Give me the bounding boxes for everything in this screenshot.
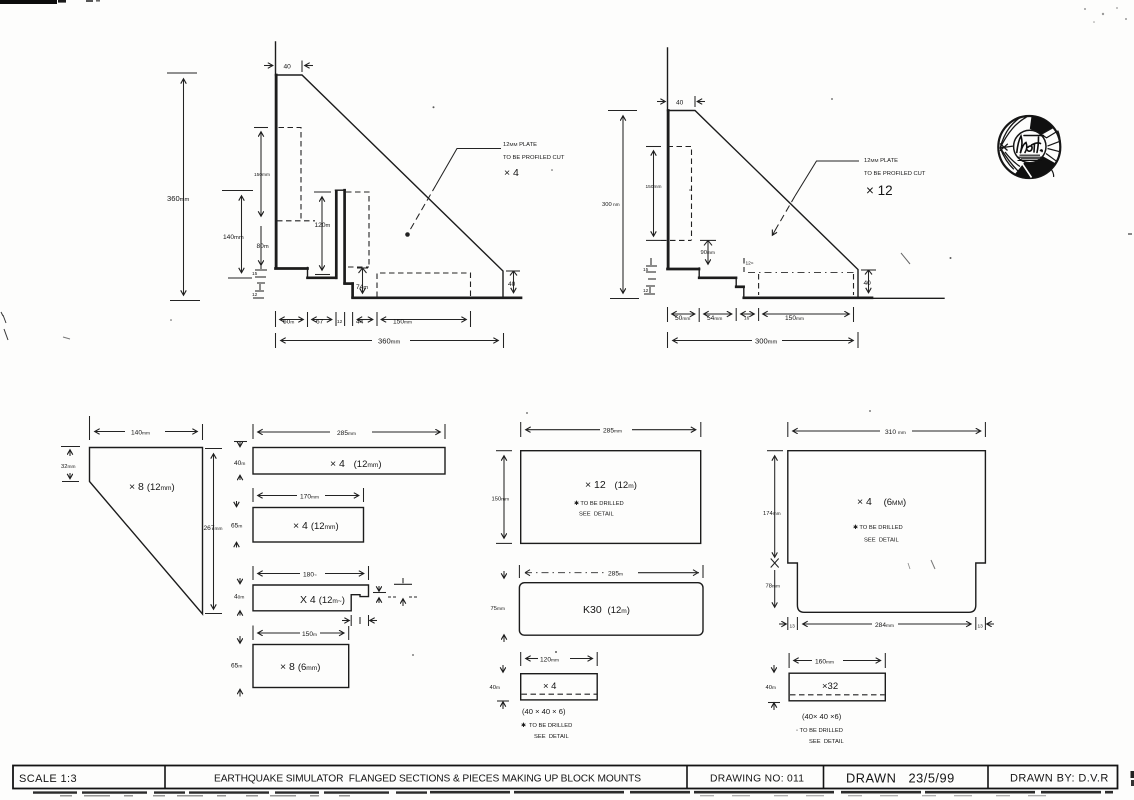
svg-text:67: 67 xyxy=(316,319,324,326)
svg-text:150m: 150m xyxy=(302,631,317,638)
svg-text:13: 13 xyxy=(790,624,796,630)
svg-text:12»: 12» xyxy=(746,261,754,267)
svg-text:TO BE PROFILED CUT: TO BE PROFILED CUT xyxy=(864,171,926,177)
svg-text:(40× 40 ×6): (40× 40 ×6) xyxy=(802,712,842,721)
svg-text:310 mm: 310 mm xyxy=(885,429,906,436)
svg-text:EARTHQUAKE SIMULATOR FLANGED: EARTHQUAKE SIMULATOR FLANGED SECTIONS & … xyxy=(214,774,641,785)
svg-text:16: 16 xyxy=(744,316,750,322)
svg-text:12: 12 xyxy=(643,288,649,294)
svg-text:74m: 74m xyxy=(356,284,368,291)
svg-text:78mm: 78mm xyxy=(766,584,780,590)
svg-text:150mm: 150mm xyxy=(785,315,804,322)
svg-text:285m: 285m xyxy=(608,571,623,578)
svg-text:65m: 65m xyxy=(231,663,242,670)
svg-text:× 4: × 4 xyxy=(543,681,556,692)
svg-text:65m: 65m xyxy=(231,523,242,530)
svg-text:180~: 180~ xyxy=(303,572,317,579)
svg-text:12: 12 xyxy=(252,292,258,298)
svg-text:◦ TO BE DRILLED: ◦ TO BE DRILLED xyxy=(796,728,843,734)
svg-text:40: 40 xyxy=(864,280,872,287)
svg-text:80m: 80m xyxy=(257,243,269,250)
svg-text:150mm: 150mm xyxy=(254,172,270,178)
svg-text:150mm: 150mm xyxy=(492,497,510,503)
svg-text:✱ TO BE DRILLED: ✱ TO BE DRILLED xyxy=(574,500,624,507)
svg-text:40: 40 xyxy=(284,64,292,71)
svg-text:90mm: 90mm xyxy=(701,250,715,256)
svg-text:32mm: 32mm xyxy=(61,464,75,470)
svg-text:40: 40 xyxy=(508,281,516,288)
svg-text:285mm: 285mm xyxy=(337,430,356,437)
svg-text:15: 15 xyxy=(252,271,258,277)
svg-text:40m: 40m xyxy=(234,460,245,467)
svg-text:50mm: 50mm xyxy=(675,315,690,322)
svg-text:140mm: 140mm xyxy=(223,234,244,241)
svg-text:170mm: 170mm xyxy=(300,494,319,501)
svg-text:284mm: 284mm xyxy=(875,622,894,629)
svg-text:44: 44 xyxy=(356,319,364,326)
svg-text:300 nm: 300 nm xyxy=(602,202,620,208)
svg-text:SEE DETAIL: SEE DETAIL xyxy=(534,734,569,740)
svg-text:× 4: × 4 xyxy=(504,167,519,179)
svg-text:15: 15 xyxy=(643,267,649,273)
svg-text:SEE DETAIL: SEE DETAIL xyxy=(809,739,844,745)
svg-text:SEE DETAIL: SEE DETAIL xyxy=(579,512,614,518)
svg-text:✱ TO BE DRILLED: ✱ TO BE DRILLED xyxy=(853,524,903,531)
svg-text:×32: ×32 xyxy=(822,681,838,692)
svg-text:40: 40 xyxy=(676,100,684,107)
svg-text:12MM PLATE: 12MM PLATE xyxy=(864,158,898,164)
svg-text:13: 13 xyxy=(978,624,984,630)
svg-text:DRAWING NO: 011: DRAWING NO: 011 xyxy=(710,774,804,785)
svg-text:75mm: 75mm xyxy=(491,606,505,612)
svg-text:120m: 120m xyxy=(315,222,331,229)
svg-text:174mm: 174mm xyxy=(763,511,781,517)
svg-text:50m: 50m xyxy=(283,319,294,326)
svg-text:12MM PLATE: 12MM PLATE xyxy=(503,142,537,148)
svg-text:SEE DETAIL: SEE DETAIL xyxy=(864,538,899,544)
svg-text:✱ TO BE DRILLED: ✱ TO BE DRILLED xyxy=(521,722,572,729)
svg-text:SCALE 1:3: SCALE 1:3 xyxy=(19,773,77,785)
svg-text:× 12: × 12 xyxy=(866,183,893,198)
svg-text:40m: 40m xyxy=(490,685,500,691)
svg-text:160mm: 160mm xyxy=(815,659,834,666)
svg-text:140mm: 140mm xyxy=(131,430,150,437)
svg-text:150mm: 150mm xyxy=(646,184,662,190)
svg-text:40m: 40m xyxy=(234,594,244,601)
svg-text:(40 × 40 × 6): (40 × 40 × 6) xyxy=(522,707,566,716)
svg-text:TO BE PROFILED CUT: TO BE PROFILED CUT xyxy=(503,155,565,161)
svg-text:267mm: 267mm xyxy=(204,525,223,532)
svg-text:150mm: 150mm xyxy=(393,319,412,326)
svg-text:120mm: 120mm xyxy=(540,657,559,664)
svg-text:12: 12 xyxy=(337,319,343,325)
svg-text:DRAWN 23/5/99: DRAWN 23/5/99 xyxy=(846,771,955,786)
svg-text:40m: 40m xyxy=(766,685,776,691)
svg-text:DRAWN BY: D.V.R: DRAWN BY: D.V.R xyxy=(1010,773,1109,785)
svg-text:54mm: 54mm xyxy=(707,315,722,322)
svg-text:285mm: 285mm xyxy=(603,428,622,435)
